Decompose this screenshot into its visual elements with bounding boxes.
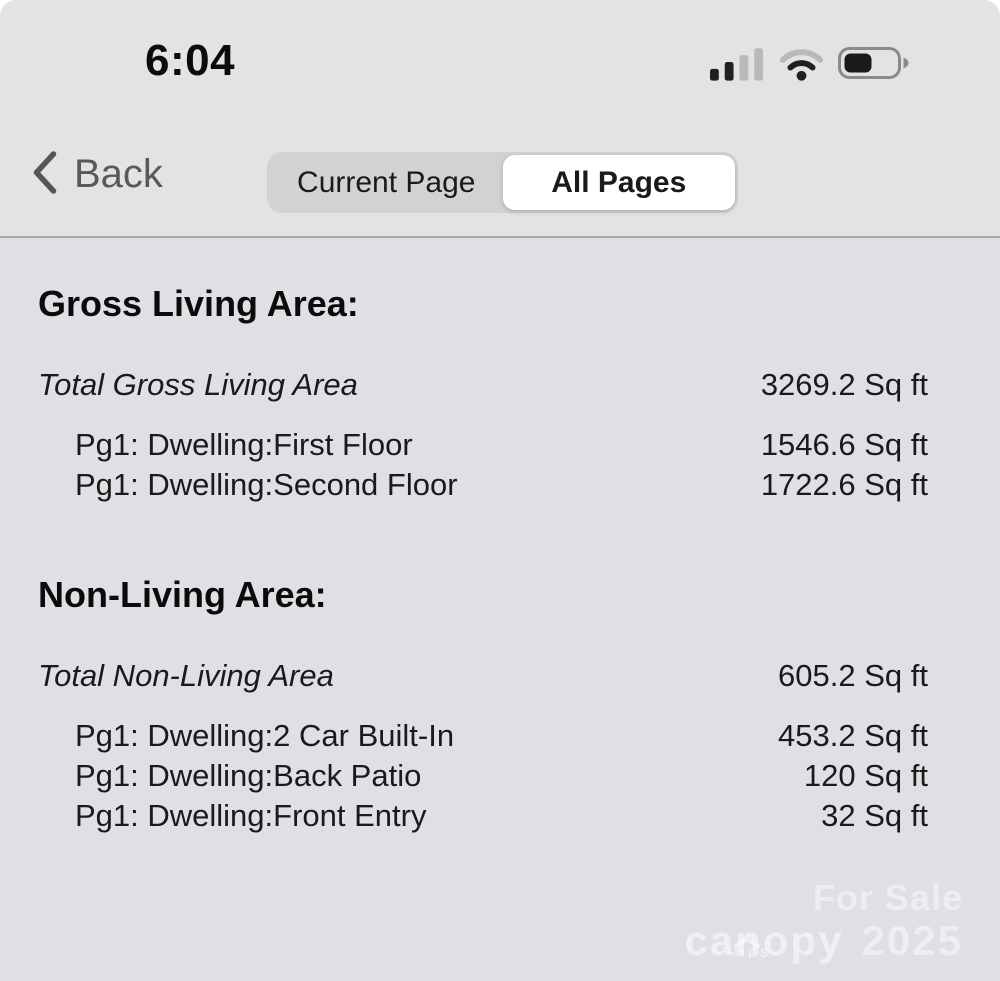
non-living-items: Pg1: Dwelling:2 Car Built-In 453.2 Sq ft… — [38, 716, 928, 836]
item-value: 1546.6 Sq ft — [761, 425, 928, 465]
canopy-logo-text: canopy — [685, 917, 844, 964]
canopy-logo: canopy MLS — [685, 919, 844, 963]
table-row: Pg1: Dwelling:Front Entry 32 Sq ft — [38, 796, 928, 836]
watermark-year: 2025 — [862, 919, 963, 963]
item-label: Pg1: Dwelling:Front Entry — [38, 796, 426, 836]
canopy-roof-icon — [733, 913, 761, 957]
chevron-left-icon — [31, 150, 58, 198]
watermark-brand-line: canopy MLS 2025 — [685, 919, 963, 963]
battery-icon — [838, 45, 912, 81]
back-button[interactable]: Back — [25, 146, 169, 202]
status-icons — [710, 44, 912, 82]
item-label: Pg1: Dwelling:Back Patio — [38, 756, 421, 796]
section-heading-non-living-area: Non-Living Area: — [38, 573, 928, 616]
segment-all-pages[interactable]: All Pages — [503, 155, 736, 210]
table-row: Pg1: Dwelling:Back Patio 120 Sq ft — [38, 756, 928, 796]
status-bar: 6:04 — [0, 0, 1000, 112]
watermark-for-sale-text: For Sale — [685, 877, 963, 919]
item-value: 120 Sq ft — [804, 756, 928, 796]
total-value: 605.2 Sq ft — [778, 656, 928, 696]
mls-label: MLS — [735, 931, 772, 975]
item-value: 32 Sq ft — [821, 796, 928, 836]
wifi-icon — [778, 45, 825, 81]
total-row-non-living: Total Non-Living Area 605.2 Sq ft — [38, 656, 928, 696]
area-report-content[interactable]: Gross Living Area: Total Gross Living Ar… — [0, 238, 1000, 981]
total-label: Total Non-Living Area — [38, 656, 334, 696]
nav-bar: Back Current Page All Pages — [0, 112, 1000, 236]
item-label: Pg1: Dwelling:2 Car Built-In — [38, 716, 454, 756]
status-time: 6:04 — [145, 36, 235, 86]
gross-living-items: Pg1: Dwelling:First Floor 1546.6 Sq ft P… — [38, 425, 928, 505]
item-value: 453.2 Sq ft — [778, 716, 928, 756]
section-heading-gross-living-area: Gross Living Area: — [38, 282, 928, 325]
back-button-label: Back — [74, 152, 163, 197]
total-row-gross-living: Total Gross Living Area 3269.2 Sq ft — [38, 365, 928, 405]
canopy-mls-watermark: For Sale canopy MLS 2025 — [685, 877, 963, 963]
table-row: Pg1: Dwelling:Second Floor 1722.6 Sq ft — [38, 465, 928, 505]
item-label: Pg1: Dwelling:Second Floor — [38, 465, 458, 505]
total-value: 3269.2 Sq ft — [761, 365, 928, 405]
cellular-signal-icon — [710, 45, 765, 81]
item-label: Pg1: Dwelling:First Floor — [38, 425, 413, 465]
table-row: Pg1: Dwelling:First Floor 1546.6 Sq ft — [38, 425, 928, 465]
segment-current-page[interactable]: Current Page — [270, 155, 503, 210]
phone-screen: 6:04 — [0, 0, 1000, 981]
total-label: Total Gross Living Area — [38, 365, 358, 405]
table-row: Pg1: Dwelling:2 Car Built-In 453.2 Sq ft — [38, 716, 928, 756]
item-value: 1722.6 Sq ft — [761, 465, 928, 505]
page-scope-segmented-control: Current Page All Pages — [267, 152, 738, 213]
